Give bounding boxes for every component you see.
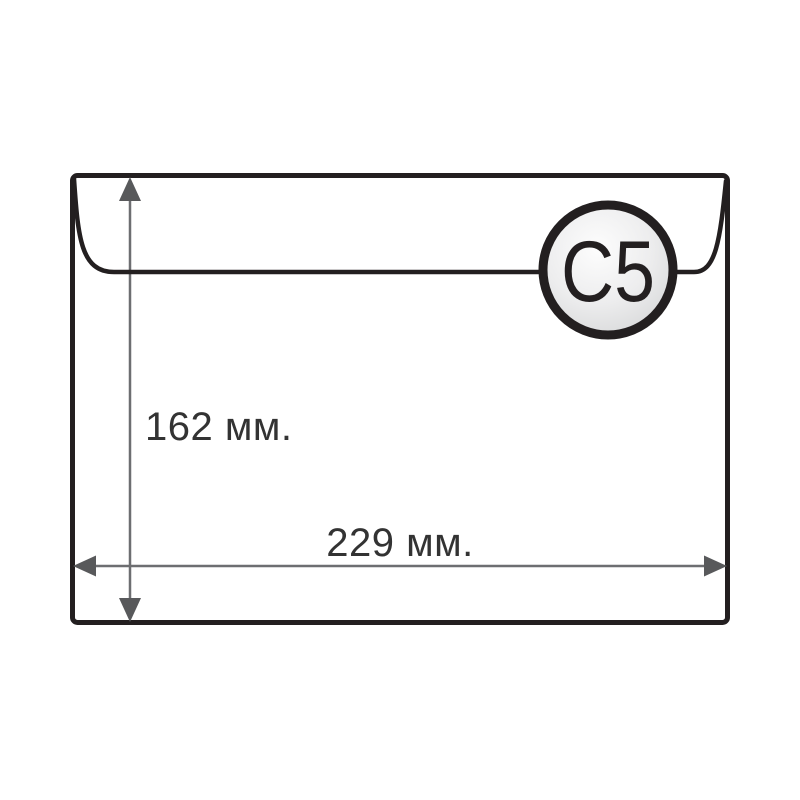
size-badge: C5 [543,205,673,335]
size-badge-label: C5 [561,224,655,320]
height-dimension-label: 162 мм. [145,405,292,449]
diagram-canvas: C5 162 мм. 229 мм. [0,0,800,800]
width-dimension-label: 229 мм. [326,521,473,565]
envelope-size-diagram: C5 162 мм. 229 мм. [0,0,800,800]
